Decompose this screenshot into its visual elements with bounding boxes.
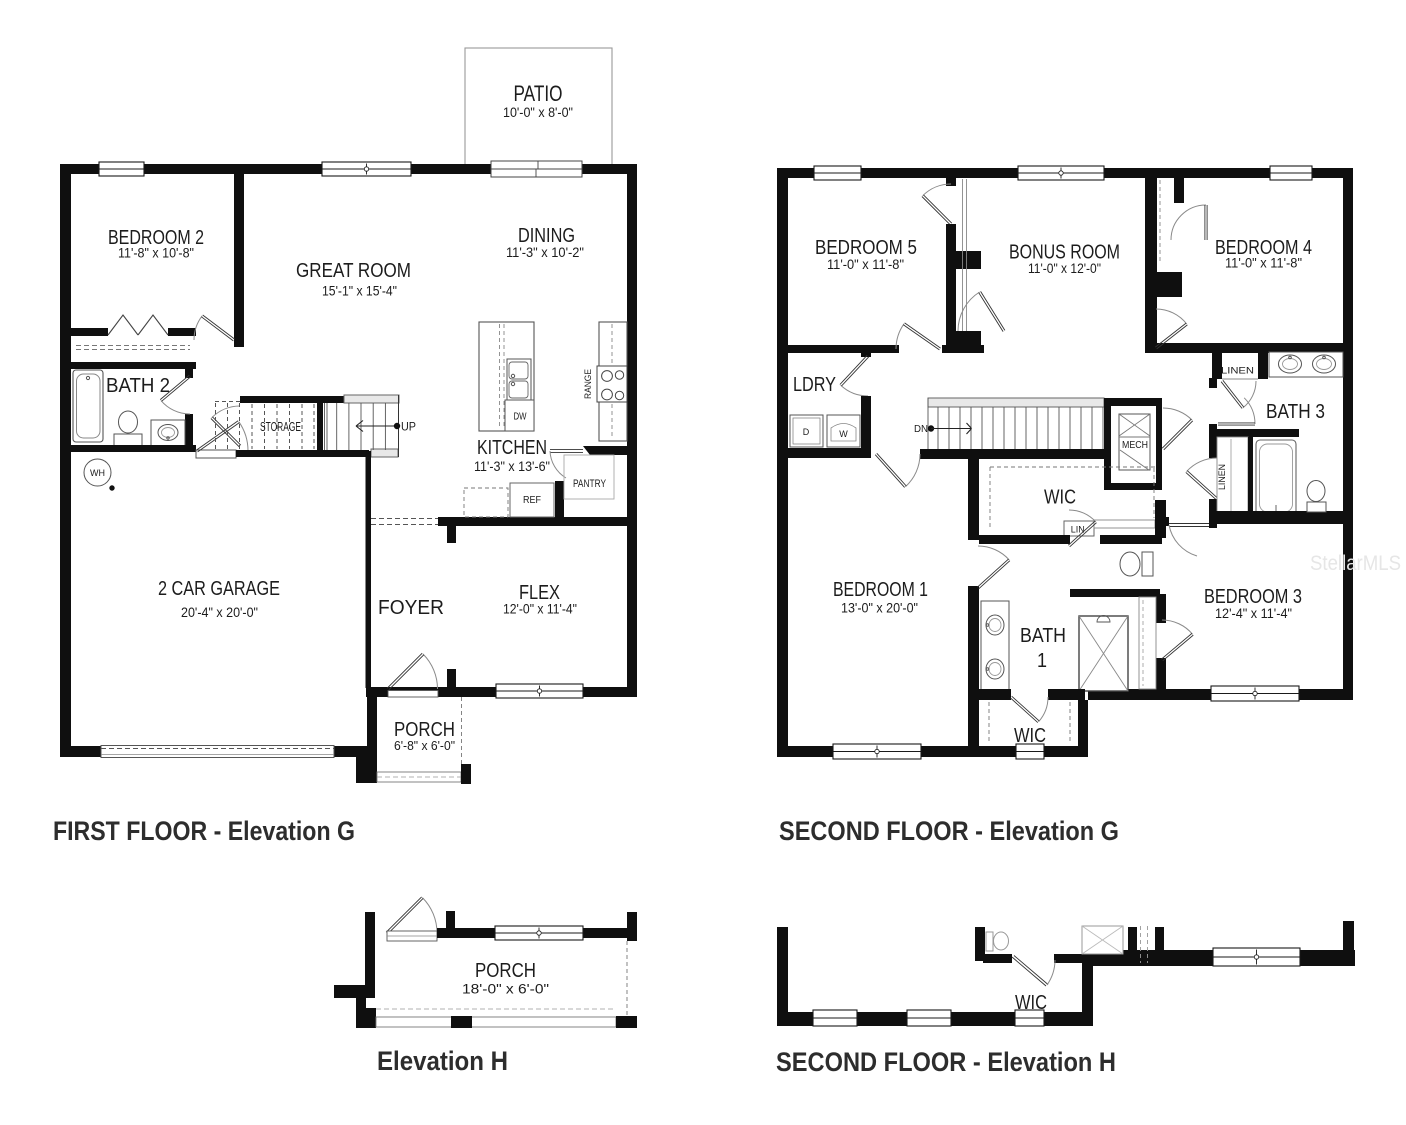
svg-text:BATH 2: BATH 2 — [106, 375, 170, 397]
svg-text:PATIO: PATIO — [514, 81, 563, 106]
svg-text:KITCHEN: KITCHEN — [477, 437, 547, 459]
svg-text:WIC: WIC — [1015, 992, 1047, 1014]
svg-text:11'-3" x 10'-2": 11'-3" x 10'-2" — [506, 244, 584, 260]
svg-text:LINEN: LINEN — [1221, 366, 1254, 377]
svg-text:BATH 3: BATH 3 — [1266, 401, 1325, 423]
svg-text:13'-0" x 20'-0": 13'-0" x 20'-0" — [841, 600, 918, 616]
svg-text:LINEN: LINEN — [1217, 464, 1227, 490]
svg-text:GREAT ROOM: GREAT ROOM — [296, 260, 411, 282]
svg-text:11'-0" x 12'-0": 11'-0" x 12'-0" — [1028, 261, 1101, 276]
svg-text:Elevation H: Elevation H — [377, 1046, 508, 1076]
svg-text:LDRY: LDRY — [793, 374, 836, 396]
svg-text:DN: DN — [914, 424, 928, 435]
svg-text:11'-3" x 13'-6": 11'-3" x 13'-6" — [474, 458, 550, 474]
svg-text:11'-0" x 11'-8": 11'-0" x 11'-8" — [1225, 256, 1302, 271]
svg-text:MECH: MECH — [1122, 440, 1148, 451]
svg-text:FOYER: FOYER — [378, 597, 444, 619]
svg-text:D: D — [803, 427, 810, 437]
svg-text:RANGE: RANGE — [583, 369, 594, 399]
svg-text:REF: REF — [523, 494, 541, 506]
svg-text:WIC: WIC — [1044, 487, 1076, 509]
svg-text:6'-8" x 6'-0": 6'-8" x 6'-0" — [394, 739, 455, 753]
svg-text:BEDROOM 5: BEDROOM 5 — [815, 237, 917, 259]
svg-text:SECOND FLOOR - Elevation H: SECOND FLOOR - Elevation H — [776, 1047, 1116, 1077]
svg-text:BATH: BATH — [1020, 625, 1066, 647]
svg-text:11'-8" x 10'-8": 11'-8" x 10'-8" — [118, 246, 194, 261]
svg-text:15'-1" x 15'-4": 15'-1" x 15'-4" — [322, 283, 397, 299]
svg-text:UP: UP — [401, 420, 416, 434]
svg-text:12'-0" x 11'-4": 12'-0" x 11'-4" — [503, 601, 577, 617]
svg-text:10'-0" x 8'-0": 10'-0" x 8'-0" — [503, 105, 573, 120]
svg-text:STORAGE: STORAGE — [260, 420, 301, 434]
svg-text:20'-4" x 20'-0": 20'-4" x 20'-0" — [181, 604, 258, 620]
svg-text:2 CAR GARAGE: 2 CAR GARAGE — [158, 578, 280, 600]
svg-text:12'-4" x 11'-4": 12'-4" x 11'-4" — [1215, 606, 1292, 621]
svg-text:WIC: WIC — [1014, 725, 1046, 747]
svg-text:SECOND FLOOR - Elevation G: SECOND FLOOR - Elevation G — [779, 816, 1119, 846]
svg-text:18'-0" x 6'-0": 18'-0" x 6'-0" — [462, 981, 549, 997]
svg-text:BEDROOM 1: BEDROOM 1 — [833, 579, 928, 601]
svg-text:1: 1 — [1037, 650, 1047, 672]
svg-text:WH: WH — [90, 468, 105, 478]
svg-text:W: W — [839, 429, 848, 439]
svg-text:PORCH: PORCH — [394, 719, 455, 741]
svg-text:11'-0" x 11'-8": 11'-0" x 11'-8" — [827, 257, 904, 272]
svg-text:PANTRY: PANTRY — [573, 478, 606, 490]
svg-text:PORCH: PORCH — [475, 960, 536, 982]
svg-text:DW: DW — [514, 412, 527, 423]
svg-text:FIRST FLOOR - Elevation G: FIRST FLOOR - Elevation G — [53, 816, 355, 846]
svg-text:BEDROOM 3: BEDROOM 3 — [1204, 586, 1302, 608]
svg-text:StellarMLS: StellarMLS — [1310, 552, 1401, 575]
